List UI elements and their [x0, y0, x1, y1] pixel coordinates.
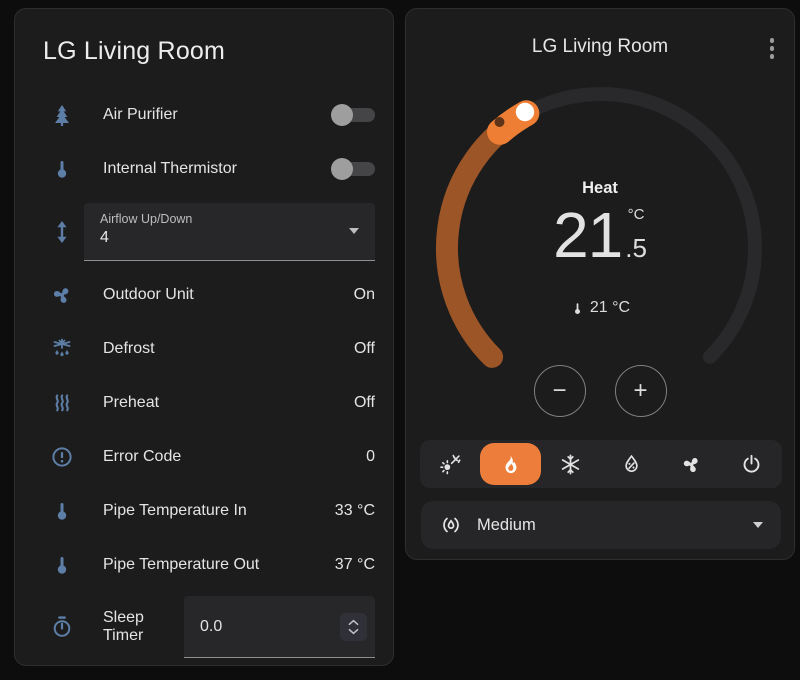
thermometer-icon [570, 301, 585, 316]
row-sleep-timer: Sleep Timer [49, 592, 375, 662]
fan-icon [680, 453, 703, 476]
mode-fan-only-button[interactable] [661, 443, 721, 485]
fan-icon [49, 282, 75, 308]
airflow-select[interactable]: Airflow Up/Down 4 [84, 203, 375, 261]
thermostat-card: LG Living Room Heat 21 °C .5 21 °C − + [405, 8, 795, 560]
stepper-up-icon [348, 619, 359, 626]
row-value: 33 °C [335, 502, 375, 520]
row-value: 37 °C [335, 556, 375, 574]
row-label: Pipe Temperature In [103, 502, 335, 520]
timer-icon [49, 614, 75, 640]
alert-circle-icon [49, 444, 75, 470]
row-label: Preheat [103, 394, 354, 412]
row-airflow: Airflow Up/Down 4 [49, 196, 375, 268]
heat-wave-icon [49, 390, 75, 416]
chevron-down-icon [753, 522, 763, 528]
row-air-purifier[interactable]: Air Purifier [49, 88, 375, 142]
card-title: LG Living Room [43, 37, 393, 71]
entity-rows: Air Purifier Internal Thermistor Airflow… [15, 71, 393, 662]
current-temp-value: 21 °C [590, 299, 630, 317]
sleep-timer-field [184, 596, 375, 658]
row-label: Air Purifier [103, 106, 331, 124]
arrow-up-down-icon [49, 219, 75, 245]
decrease-temp-button[interactable]: − [534, 365, 586, 417]
row-label: Sleep Timer [103, 609, 184, 645]
row-outdoor-unit[interactable]: Outdoor Unit On [49, 268, 375, 322]
fan-mode-select[interactable]: Medium [421, 501, 781, 549]
chevron-down-icon [349, 228, 359, 234]
air-purifier-toggle[interactable] [331, 104, 375, 126]
mode-off-button[interactable] [722, 443, 782, 485]
air-purifier-icon [49, 102, 75, 128]
fan-speed-icon [439, 513, 463, 537]
entities-card: LG Living Room Air Purifier Internal The… [14, 8, 394, 666]
select-label: Airflow Up/Down [100, 212, 359, 226]
row-internal-thermistor[interactable]: Internal Thermistor [49, 142, 375, 196]
select-value: 4 [100, 229, 359, 247]
row-label: Internal Thermistor [103, 160, 331, 178]
current-temperature: 21 °C [406, 299, 794, 317]
temp-unit: °C [625, 206, 647, 223]
dial-handle-knob[interactable] [516, 103, 534, 121]
sleep-timer-input[interactable] [200, 618, 310, 636]
row-defrost[interactable]: Defrost Off [49, 322, 375, 376]
power-icon [740, 453, 763, 476]
row-value: Off [354, 394, 375, 412]
row-label: Outdoor Unit [103, 286, 354, 304]
target-temp-fraction: .5 [625, 233, 647, 264]
hvac-mode-bar [420, 440, 782, 488]
row-preheat[interactable]: Preheat Off [49, 376, 375, 430]
row-label: Defrost [103, 340, 354, 358]
mode-heat-cool-button[interactable] [420, 443, 480, 485]
snowflake-icon [559, 453, 582, 476]
row-error-code[interactable]: Error Code 0 [49, 430, 375, 484]
thermometer-icon [49, 552, 75, 578]
temperature-buttons: − + [406, 365, 794, 417]
row-label: Pipe Temperature Out [103, 556, 335, 574]
target-temp-integer: 21 [553, 202, 622, 268]
fire-icon [499, 453, 522, 476]
snowflake-melt-icon [49, 336, 75, 362]
mode-dry-button[interactable] [601, 443, 661, 485]
row-pipe-temp-out[interactable]: Pipe Temperature Out 37 °C [49, 538, 375, 592]
row-value: On [354, 286, 375, 304]
row-value: Off [354, 340, 375, 358]
thermometer-icon [49, 156, 75, 182]
card-title: LG Living Room [406, 36, 794, 58]
thermometer-icon [49, 498, 75, 524]
internal-thermistor-toggle[interactable] [331, 158, 375, 180]
target-temperature: 21 °C .5 [406, 202, 794, 268]
stepper-down-icon [348, 628, 359, 635]
water-percent-icon [620, 453, 643, 476]
hvac-action-label: Heat [406, 179, 794, 198]
current-temp-dot [495, 117, 505, 127]
more-options-icon[interactable] [767, 35, 778, 62]
increase-temp-button[interactable]: + [615, 365, 667, 417]
row-label: Error Code [103, 448, 366, 466]
row-pipe-temp-in[interactable]: Pipe Temperature In 33 °C [49, 484, 375, 538]
fan-mode-value: Medium [477, 516, 536, 535]
mode-cool-button[interactable] [541, 443, 601, 485]
number-stepper[interactable] [340, 613, 367, 641]
row-value: 0 [366, 448, 375, 466]
mode-heat-button[interactable] [480, 443, 540, 485]
sun-snowflake-icon [439, 453, 462, 476]
